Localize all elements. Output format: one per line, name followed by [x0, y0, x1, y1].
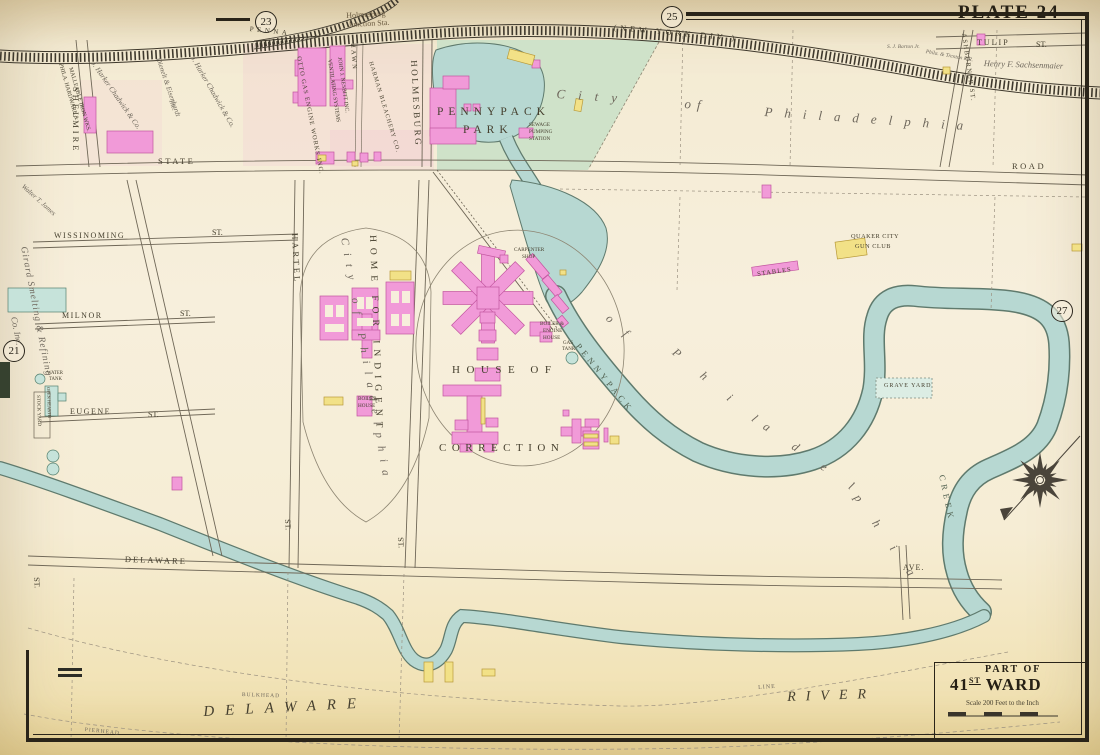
house-of-correction-star-building — [443, 253, 533, 343]
building-label-sewage: SEWAGE — [529, 123, 550, 128]
building-label-boiler-house: HOUSE — [358, 404, 375, 409]
building-label-quaker-club: QUAKER CITY — [851, 234, 899, 240]
plate-number: 27 — [1057, 305, 1068, 317]
building-label-water-tank: TANK — [49, 378, 62, 383]
plate-number: 21 — [9, 345, 20, 357]
gas-tank — [566, 352, 578, 364]
building-label-boiler-engine: ENGINE — [543, 329, 562, 334]
delaware-shore-outline — [0, 468, 984, 665]
area-label-house-of: HOUSE OF — [452, 365, 557, 376]
scale-bar — [948, 712, 1058, 716]
street-label-wissinoming: WISSINOMING — [54, 232, 125, 240]
wharf — [58, 674, 82, 677]
street-label-wissinoming-st: ST. — [212, 229, 223, 237]
area-label-correction: CORRECTION — [439, 443, 564, 454]
building-label-quaker-club: GUN CLUB — [855, 244, 891, 250]
atlas-map-plate: PLATE 24 23 25 27 21 Holmesburg Junction… — [0, 0, 1100, 755]
area-label-of: of — [684, 97, 707, 112]
area-label-grave-yard: GRAVE YARD — [884, 383, 932, 389]
ward-ordinal: ST — [969, 676, 981, 685]
building-label-boiler-house: BOILER — [358, 397, 377, 402]
adjacent-plate-27: 27 — [1051, 300, 1073, 322]
building-label-sewage: PUMPING — [529, 130, 552, 135]
plate-title: PLATE 24 — [958, 3, 1060, 22]
building-label-open-hearth: OPEN HEARTH — [46, 387, 52, 418]
street-label-milnor: MILNOR — [62, 312, 103, 320]
pier — [0, 362, 10, 398]
area-label-pennypack-park: PARK — [463, 125, 513, 137]
line-label-line: LINE — [758, 684, 776, 691]
street-label-road: ROAD — [1012, 162, 1046, 171]
street-label-eugene: EUGENE — [70, 408, 111, 416]
building-label-sewage: STATION — [529, 137, 550, 142]
adjacent-plate-25: 25 — [661, 6, 683, 28]
title-part-of: PART OF — [985, 665, 1041, 675]
building-label-boiler-engine: BOILER & — [540, 322, 564, 327]
building-label-boiler-engine: HOUSE — [543, 336, 560, 341]
street-label-delaware-ave: DELAWARE — [125, 555, 187, 566]
building-label-stock-yard: STOCK YARD — [35, 395, 41, 426]
map-graphics — [0, 0, 1100, 755]
owner-label-barton: S. J. Barton Jr. — [887, 45, 920, 51]
title-ward: 41ST WARD — [950, 676, 1042, 693]
street-label-tulip: TULIP — [977, 39, 1010, 47]
street-label-st: ST. — [32, 577, 41, 588]
street-label-hawn: HAWN — [349, 43, 357, 71]
street-label-hartel: HARTEL — [291, 233, 302, 284]
street-label-st: ST. — [396, 537, 405, 548]
street-label-milnor-st: ST. — [180, 310, 191, 318]
building-label-carpenter: SHOP — [522, 255, 535, 260]
area-label-pennypack-park: PENNYPACK — [437, 107, 550, 119]
delaware-river-shore — [0, 468, 984, 665]
ward-number: 41 — [950, 675, 969, 694]
ward-word: WARD — [986, 675, 1042, 694]
street-label-tulip-st: ST. — [1036, 41, 1047, 49]
title-scale-note: Scale 200 Feet to the Inch — [966, 700, 1039, 707]
wharf — [58, 668, 82, 671]
street-label-eugene-st: ST. — [148, 411, 159, 419]
street-label-st: ST. — [283, 519, 292, 530]
building-label-gas-tank: GAS — [563, 341, 573, 346]
building-label-carpenter: CARPENTER — [514, 248, 544, 253]
street-label-state: STATE — [158, 157, 195, 166]
street-label-ave: AVE. — [903, 564, 924, 572]
plate-number: 25 — [667, 11, 678, 23]
